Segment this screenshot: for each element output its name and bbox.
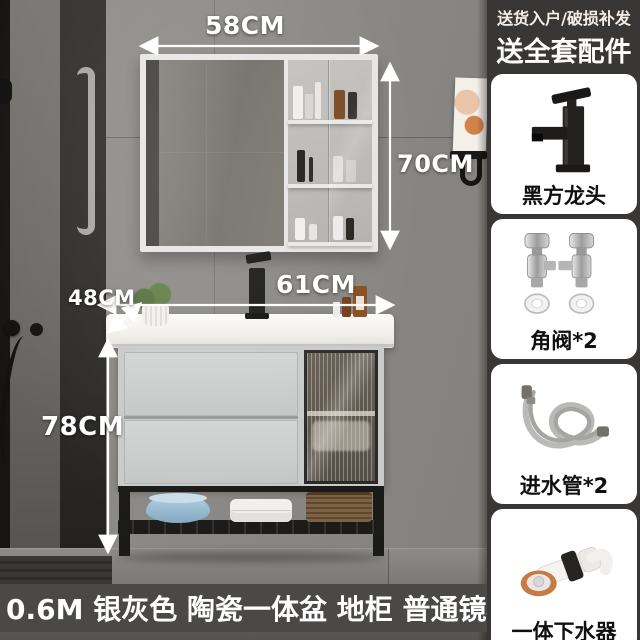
dim-label-counter-depth: 48CM <box>68 286 136 310</box>
accessory-card-valves: 角阀*2 <box>491 219 637 359</box>
accessory-label: 进水管*2 <box>520 475 609 498</box>
inlet-hoses-image <box>491 364 637 475</box>
photo-edge-shadow <box>477 0 487 640</box>
dim-label-mirror-height: 70CM <box>397 150 474 178</box>
bathroom-scene: 58CM 70CM 61CM 48CM 78CM 0.6M 银灰色 陶瓷一体盆 … <box>0 0 487 640</box>
integrated-drain-image <box>491 509 637 620</box>
accessory-card-faucet: 黑方龙头 <box>491 74 637 214</box>
product-image: 58CM 70CM 61CM 48CM 78CM 0.6M 银灰色 陶瓷一体盆 … <box>0 0 640 640</box>
sidebar-tagline: 送货入户/破损补发 <box>491 5 637 29</box>
dim-label-counter-width: 61CM <box>276 270 356 299</box>
dim-label-cabinet-height: 78CM <box>41 412 124 442</box>
accessory-cards: 黑方龙头 <box>491 74 637 640</box>
accessories-sidebar: 送货入户/破损补发 送全套配件 黑方龙头 <box>487 0 640 640</box>
accessory-label: 角阀*2 <box>530 330 598 353</box>
sidebar-headline: 送全套配件 <box>491 30 637 69</box>
product-caption: 0.6M 银灰色 陶瓷一体盆 地柜 普通镜柜 <box>0 588 487 628</box>
dim-label-mirror-width: 58CM <box>205 11 285 40</box>
accessory-label: 黑方龙头 <box>522 185 606 208</box>
accessory-label: 一体下水器 <box>512 621 617 640</box>
lighting-overlay <box>0 0 487 640</box>
accessory-card-hoses: 进水管*2 <box>491 364 637 504</box>
black-square-faucet-image <box>491 74 637 185</box>
angle-valves-image <box>491 219 637 330</box>
accessory-card-drain: 一体下水器 <box>491 509 637 640</box>
caption-bar: 0.6M 银灰色 陶瓷一体盆 地柜 普通镜柜 <box>0 584 487 632</box>
